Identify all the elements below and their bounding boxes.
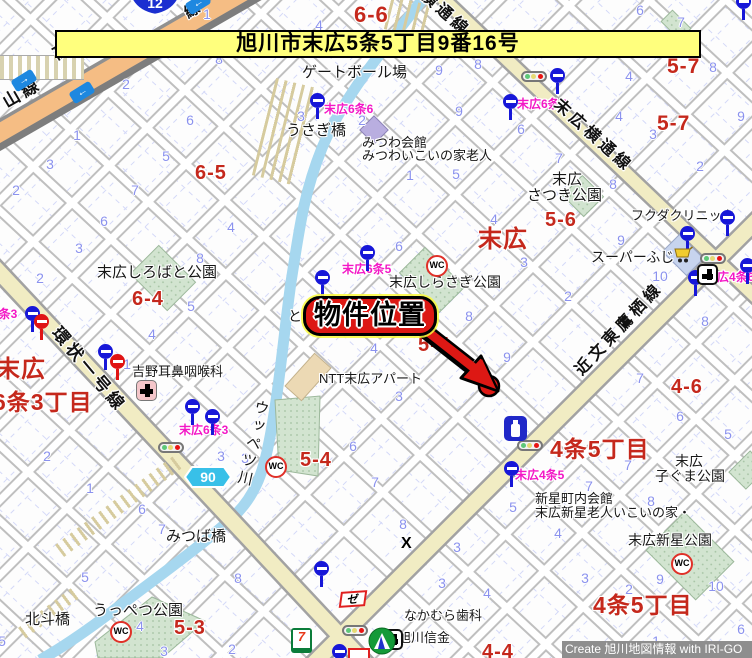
- lot-number: 3: [453, 539, 461, 555]
- lot-number: 3: [160, 643, 168, 658]
- lot-number: 3: [217, 448, 225, 464]
- block-number-label: 4-6: [671, 377, 703, 398]
- lot-number: 6: [349, 438, 357, 454]
- place-label: 末広新星老人いこいの家・: [535, 506, 691, 520]
- toilet-icon: WC: [426, 255, 448, 277]
- lot-number: 2: [43, 448, 51, 464]
- map-canvas[interactable]: 旭川市末広5条5丁目9番16号 物件位置 Create 旭川地図情報 with …: [0, 0, 752, 658]
- lot-number: 3: [649, 126, 657, 142]
- credit-watermark: Create 旭川地図情報 with IRI-GO: [562, 641, 752, 658]
- block-number-label: 末広: [0, 357, 46, 382]
- block-number-label: 4条5丁目: [550, 437, 650, 461]
- place-label: 末広: [675, 454, 703, 469]
- lot-number: 4: [615, 108, 623, 124]
- lot-number: 4: [625, 68, 633, 84]
- traffic-light-icon: [700, 253, 726, 264]
- lot-number: 8: [701, 313, 709, 329]
- lot-number: 3: [395, 388, 403, 404]
- place-label: NTT末広アパート: [319, 372, 422, 386]
- lot-number: 7: [636, 370, 644, 386]
- lot-number: 3: [75, 240, 83, 256]
- lot-number: 1: [406, 167, 414, 183]
- block-number-label: 5-7: [667, 56, 700, 78]
- clinic-icon: [697, 264, 718, 285]
- lot-number: 9: [656, 571, 664, 587]
- block-number-label: 5-5: [418, 335, 450, 356]
- place-label: 末広しらさぎ公園: [389, 275, 501, 290]
- lot-number: 1: [73, 127, 81, 143]
- traffic-signal-icon: [550, 68, 565, 94]
- place-label: 末広新星公園: [628, 533, 712, 548]
- lot-number: 1: [86, 480, 94, 496]
- lot-number: 8: [709, 59, 717, 75]
- traffic-signal-icon: [736, 0, 751, 20]
- lot-number: 2: [36, 270, 44, 286]
- lot-number: 8: [399, 516, 407, 532]
- lot-number: 9: [737, 108, 745, 124]
- lot-number: 6: [138, 501, 146, 517]
- signal-name-label: 末広6条3: [179, 424, 228, 437]
- lot-number: 2: [228, 641, 236, 657]
- shop-icon: [504, 416, 527, 446]
- x-mark: X: [401, 535, 412, 553]
- traffic-signal-icon: [185, 399, 200, 425]
- lot-number: 4: [370, 340, 378, 356]
- place-label: 末広: [552, 172, 582, 188]
- lot-number: 9: [435, 62, 443, 78]
- block-number-label: 5-4: [300, 450, 332, 471]
- toilet-icon: WC: [265, 456, 287, 478]
- lot-number: 2: [564, 288, 572, 304]
- traffic-signal-icon: [205, 409, 220, 435]
- place-label: 新星町内会館: [535, 492, 613, 506]
- lot-number: 4: [136, 618, 144, 634]
- block-number-label: 5-3: [174, 618, 206, 639]
- place-label: なかむら歯科: [404, 609, 482, 623]
- lot-number: 5: [162, 148, 170, 164]
- lot-number: 9: [455, 103, 463, 119]
- traffic-signal-icon: [740, 258, 752, 284]
- traffic-signal-icon: [315, 270, 330, 296]
- lot-number: 3: [46, 156, 54, 172]
- svg-text:12: 12: [147, 0, 163, 11]
- traffic-signal-icon: [360, 245, 375, 271]
- traffic-signal-icon: [332, 644, 347, 658]
- traffic-light-icon: [342, 625, 368, 636]
- place-label: さつき公園: [527, 188, 602, 204]
- lot-number: 9: [617, 232, 625, 248]
- lot-number: 10: [708, 578, 724, 594]
- lot-number: 5: [452, 166, 460, 182]
- lot-number: 6: [737, 621, 745, 637]
- lot-number: 6: [100, 213, 108, 229]
- signal-name-label: 末広6条3: [0, 308, 17, 321]
- place-label: と: [288, 309, 302, 324]
- gas-station-icon: ゼ: [339, 590, 368, 608]
- place-label: スーパーふじ: [591, 250, 674, 265]
- place-label: 旭川信金: [398, 631, 450, 645]
- route-90-shield: 90: [184, 466, 232, 493]
- place-label: うっぺつ公園: [93, 603, 183, 619]
- block-number-label: 4-4: [482, 642, 514, 658]
- route-12-shield: 12: [124, 0, 186, 22]
- traffic-signal-icon: [310, 93, 325, 119]
- clinic-icon: [136, 380, 157, 401]
- place-label: ゲートボール場: [302, 65, 407, 81]
- lot-number: 7: [131, 182, 139, 198]
- place-label: 北斗橋: [25, 612, 70, 628]
- lot-number: 7: [555, 150, 563, 166]
- signal-name-label: 末広6条6: [324, 103, 373, 116]
- address-banner: 旭川市末広5条5丁目9番16号: [55, 30, 701, 58]
- svg-text:90: 90: [200, 469, 216, 485]
- place-label: フクダクリニック: [631, 209, 734, 223]
- lot-number: 4: [227, 219, 235, 235]
- place-label: 子ぐま公園: [655, 469, 725, 484]
- lot-number: 9: [503, 349, 511, 365]
- lot-number: 4: [148, 326, 156, 342]
- traffic-light-icon: [158, 442, 184, 453]
- toilet-icon: WC: [671, 553, 693, 575]
- lot-number: 6: [395, 238, 403, 254]
- lot-number: 7: [371, 474, 379, 490]
- lot-number: 8: [465, 308, 473, 324]
- railway-track: [0, 55, 84, 80]
- lot-number: 4: [490, 211, 498, 227]
- no-entry-icon: [110, 354, 125, 380]
- no-entry-icon: [34, 314, 49, 340]
- lot-number: 7: [677, 14, 685, 30]
- convenience-store-icon: 7: [291, 628, 312, 653]
- traffic-signal-icon: [503, 94, 518, 120]
- property-location-callout: 物件位置: [303, 296, 437, 336]
- lot-number: 5: [187, 298, 195, 314]
- block-number-label: 6-5: [195, 163, 227, 184]
- lot-number: 5: [509, 499, 517, 515]
- lot-number: 2: [12, 182, 20, 198]
- block-number-label: 6-4: [132, 289, 164, 310]
- lot-number: 5: [724, 426, 732, 442]
- signal-name-label: 末広4条5: [515, 469, 564, 482]
- lot-number: 4: [483, 585, 491, 601]
- lot-number: 2: [122, 76, 130, 92]
- place-label: みつば橋: [166, 529, 226, 545]
- bank-icon: [368, 627, 396, 658]
- lot-number: 3: [581, 570, 589, 586]
- block-number-label: 5-6: [545, 210, 577, 231]
- lot-number: 8: [474, 56, 482, 72]
- sign-box: [348, 648, 370, 658]
- traffic-light-icon: [521, 71, 547, 82]
- lot-number: 2: [696, 158, 704, 174]
- lot-number: 6: [186, 112, 194, 128]
- lot-number: 4: [554, 525, 562, 541]
- block-number-label: 6-6: [354, 3, 389, 26]
- place-label: みつわいこいの家老人: [362, 149, 492, 163]
- toilet-icon: WC: [110, 621, 132, 643]
- supermarket-icon: [673, 246, 693, 269]
- block-number-label: 5-7: [657, 113, 690, 135]
- place-label: 末広しろばと公園: [97, 265, 217, 281]
- lot-number: 5: [0, 633, 6, 649]
- lot-number: 3: [438, 575, 446, 591]
- place-label: うさぎ橋: [286, 123, 346, 139]
- traffic-signal-icon: [720, 210, 735, 236]
- lot-number: 5: [81, 569, 89, 585]
- block-number-label: 4条5丁目: [593, 593, 693, 617]
- lot-number: 3: [520, 254, 528, 270]
- lot-number: 6: [517, 121, 525, 137]
- lot-number: 8: [609, 176, 617, 192]
- lot-number: 6: [676, 408, 684, 424]
- traffic-signal-icon: [314, 561, 329, 587]
- place-label: 吉野耳鼻咽喉科: [132, 365, 223, 379]
- block-number-label: 6条3丁目: [0, 390, 93, 414]
- lot-number: 7: [158, 521, 166, 537]
- block-number-label: 末広: [478, 227, 528, 252]
- lot-number: 8: [234, 570, 242, 586]
- traffic-signal-icon: [504, 461, 519, 487]
- lot-number: 6: [636, 2, 644, 18]
